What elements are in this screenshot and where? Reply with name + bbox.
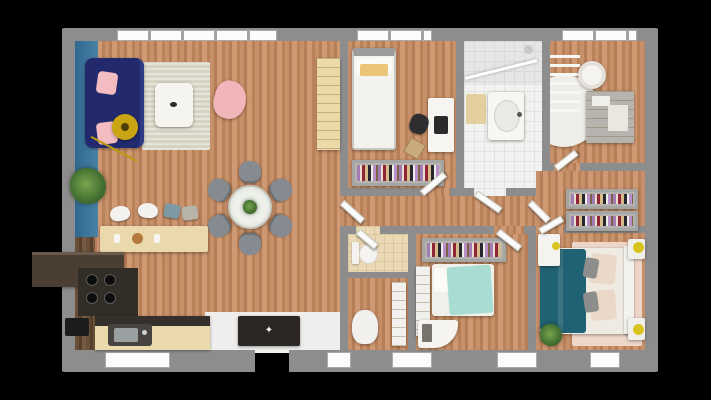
screenshot-canvas: { "scene": { "description": "3D rendered… [0, 0, 711, 400]
sink-basin [114, 328, 138, 342]
bar-cushion-blue [163, 203, 181, 220]
clothes-on-rack [357, 165, 439, 181]
counter-jar-1 [114, 234, 120, 243]
nursery-room [550, 41, 645, 163]
burner-3 [86, 292, 98, 304]
floor-plan: ✦ [62, 28, 658, 372]
master-cushion-gray-2 [583, 291, 600, 313]
burner-2 [104, 274, 116, 286]
nursery-window [562, 30, 637, 41]
burner-1 [86, 274, 98, 286]
laundry-basket [352, 310, 378, 344]
bedroom2-mint-blanket [446, 265, 493, 316]
counter-bread [132, 233, 143, 244]
living-plant [70, 168, 106, 204]
living-room-window [117, 30, 277, 41]
toilet-tank [352, 242, 359, 264]
hallway-floor [348, 196, 528, 226]
kitchen-window [105, 352, 170, 368]
swivel-pouf [578, 61, 606, 89]
coffee-table-decor [170, 102, 177, 107]
bath-mat [466, 94, 486, 124]
dressing-rack-lower [566, 211, 638, 231]
bar-cushion-gray [181, 205, 199, 221]
sofa-cushion-pink-1 [96, 71, 119, 96]
bedroom1-pillow-yellow [360, 64, 388, 76]
clothes-on-rack [571, 216, 633, 226]
dressing-vanity-desk [538, 234, 560, 266]
counter-jar-2 [154, 234, 160, 243]
dresser-item-2 [608, 105, 628, 131]
bedroom1-desk-laptop [434, 116, 448, 134]
towel-ladder [550, 55, 580, 117]
dining-table-plant [243, 200, 257, 214]
bedroom2-clothes-rack [422, 238, 506, 262]
clothes-on-rack [427, 243, 501, 257]
lamp-yellow-bottom [633, 324, 644, 335]
dining-chair-4 [239, 233, 261, 255]
bedroom2-desk-item [422, 324, 432, 342]
vanity-yellow-item [552, 242, 560, 250]
floor-lamp-bulb [121, 123, 129, 131]
vanity-basin [494, 100, 520, 132]
entrance-bench: ✦ [238, 316, 300, 346]
dining-chair-1 [239, 161, 261, 183]
vanity-faucet [517, 112, 522, 117]
bench-star-icon: ✦ [265, 326, 273, 336]
dark-appliance [65, 318, 89, 336]
dressing-rack-upper [566, 189, 638, 209]
entrance-door-gap [255, 350, 289, 375]
master-plant [540, 324, 562, 346]
lamp-yellow-top [633, 242, 644, 253]
utility-window [327, 352, 351, 368]
bedroom2-window-a [392, 352, 432, 368]
storage-cabinet [317, 58, 340, 150]
sink-faucet [142, 330, 147, 335]
shower-head [524, 45, 533, 54]
bedroom2-window-b [497, 352, 537, 368]
burner-4 [104, 292, 116, 304]
bedroom1-window [357, 30, 432, 41]
clothes-on-rack [571, 194, 633, 204]
master-window [590, 352, 620, 368]
utility-storage-column [392, 282, 406, 346]
